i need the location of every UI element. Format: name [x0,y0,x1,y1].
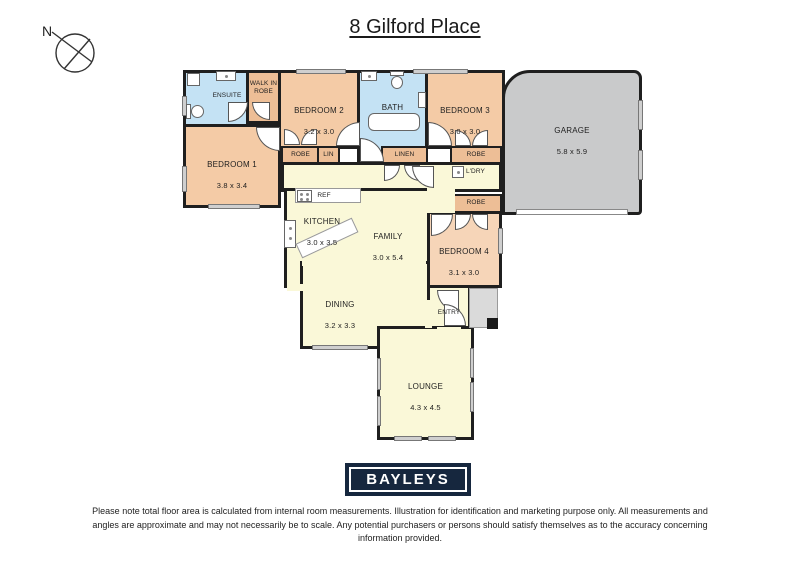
label-laundry: L'DRY [466,168,500,176]
floor-plan-page: 8 Gilford Place N [0,0,800,566]
north-label: N [42,23,52,39]
window [413,69,468,74]
window [428,436,456,441]
label-robe-bedroom2: ROBE [281,151,320,159]
label-robe-bedroom4: ROBE [450,199,502,207]
toilet-icon [191,105,204,118]
room-label-bedroom4: BEDROOM 4 3.1 x 3.0 [424,237,504,279]
label-robe-bedroom3: ROBE [450,151,502,159]
room-label-garage: GARAGE 5.8 x 5.9 [502,116,642,158]
opening-lounge-right [427,331,431,346]
bathtub-icon [368,113,420,131]
basin-icon [361,71,377,81]
stove-icon [297,190,312,202]
room-label-entry: ENTRY [427,309,471,317]
bayleys-logo-text: BAYLEYS [349,467,467,492]
room-label-walk-in-robe: WALK IN ROBE [245,80,282,97]
window [208,204,260,209]
room-label-dining: DINING 3.2 x 3.3 [300,290,380,332]
page-title: 8 Gilford Place [295,16,535,39]
basin-icon [216,71,236,81]
room-label-lounge: LOUNGE 4.3 x 4.5 [377,372,474,414]
label-fridge: REF [313,192,335,200]
window [312,345,368,350]
room-label-bath: BATH [357,103,428,113]
window [394,436,422,441]
garage-door [516,209,628,215]
compass-icon: N [38,20,102,80]
label-lin: LIN [317,151,340,159]
shower-icon [187,73,200,86]
room-label-bedroom3: BEDROOM 3 3.0 x 3.0 [425,96,505,138]
room-label-family: FAMILY 3.0 x 5.4 [348,222,428,264]
porch-post [487,318,498,329]
toilet-icon [391,76,403,89]
room-label-bedroom2: BEDROOM 2 3.2 x 3.0 [280,96,358,138]
window [296,69,346,74]
disclaimer-text: Please note total floor area is calculat… [90,505,710,546]
room-label-bedroom1: BEDROOM 1 3.8 x 3.4 [186,150,278,192]
bayleys-logo: BAYLEYS [345,463,471,496]
opening-entry-lounge [437,327,461,334]
opening-lounge-top [381,344,426,350]
label-linen: LINEN [381,151,428,159]
washing-machine-icon [452,166,464,178]
